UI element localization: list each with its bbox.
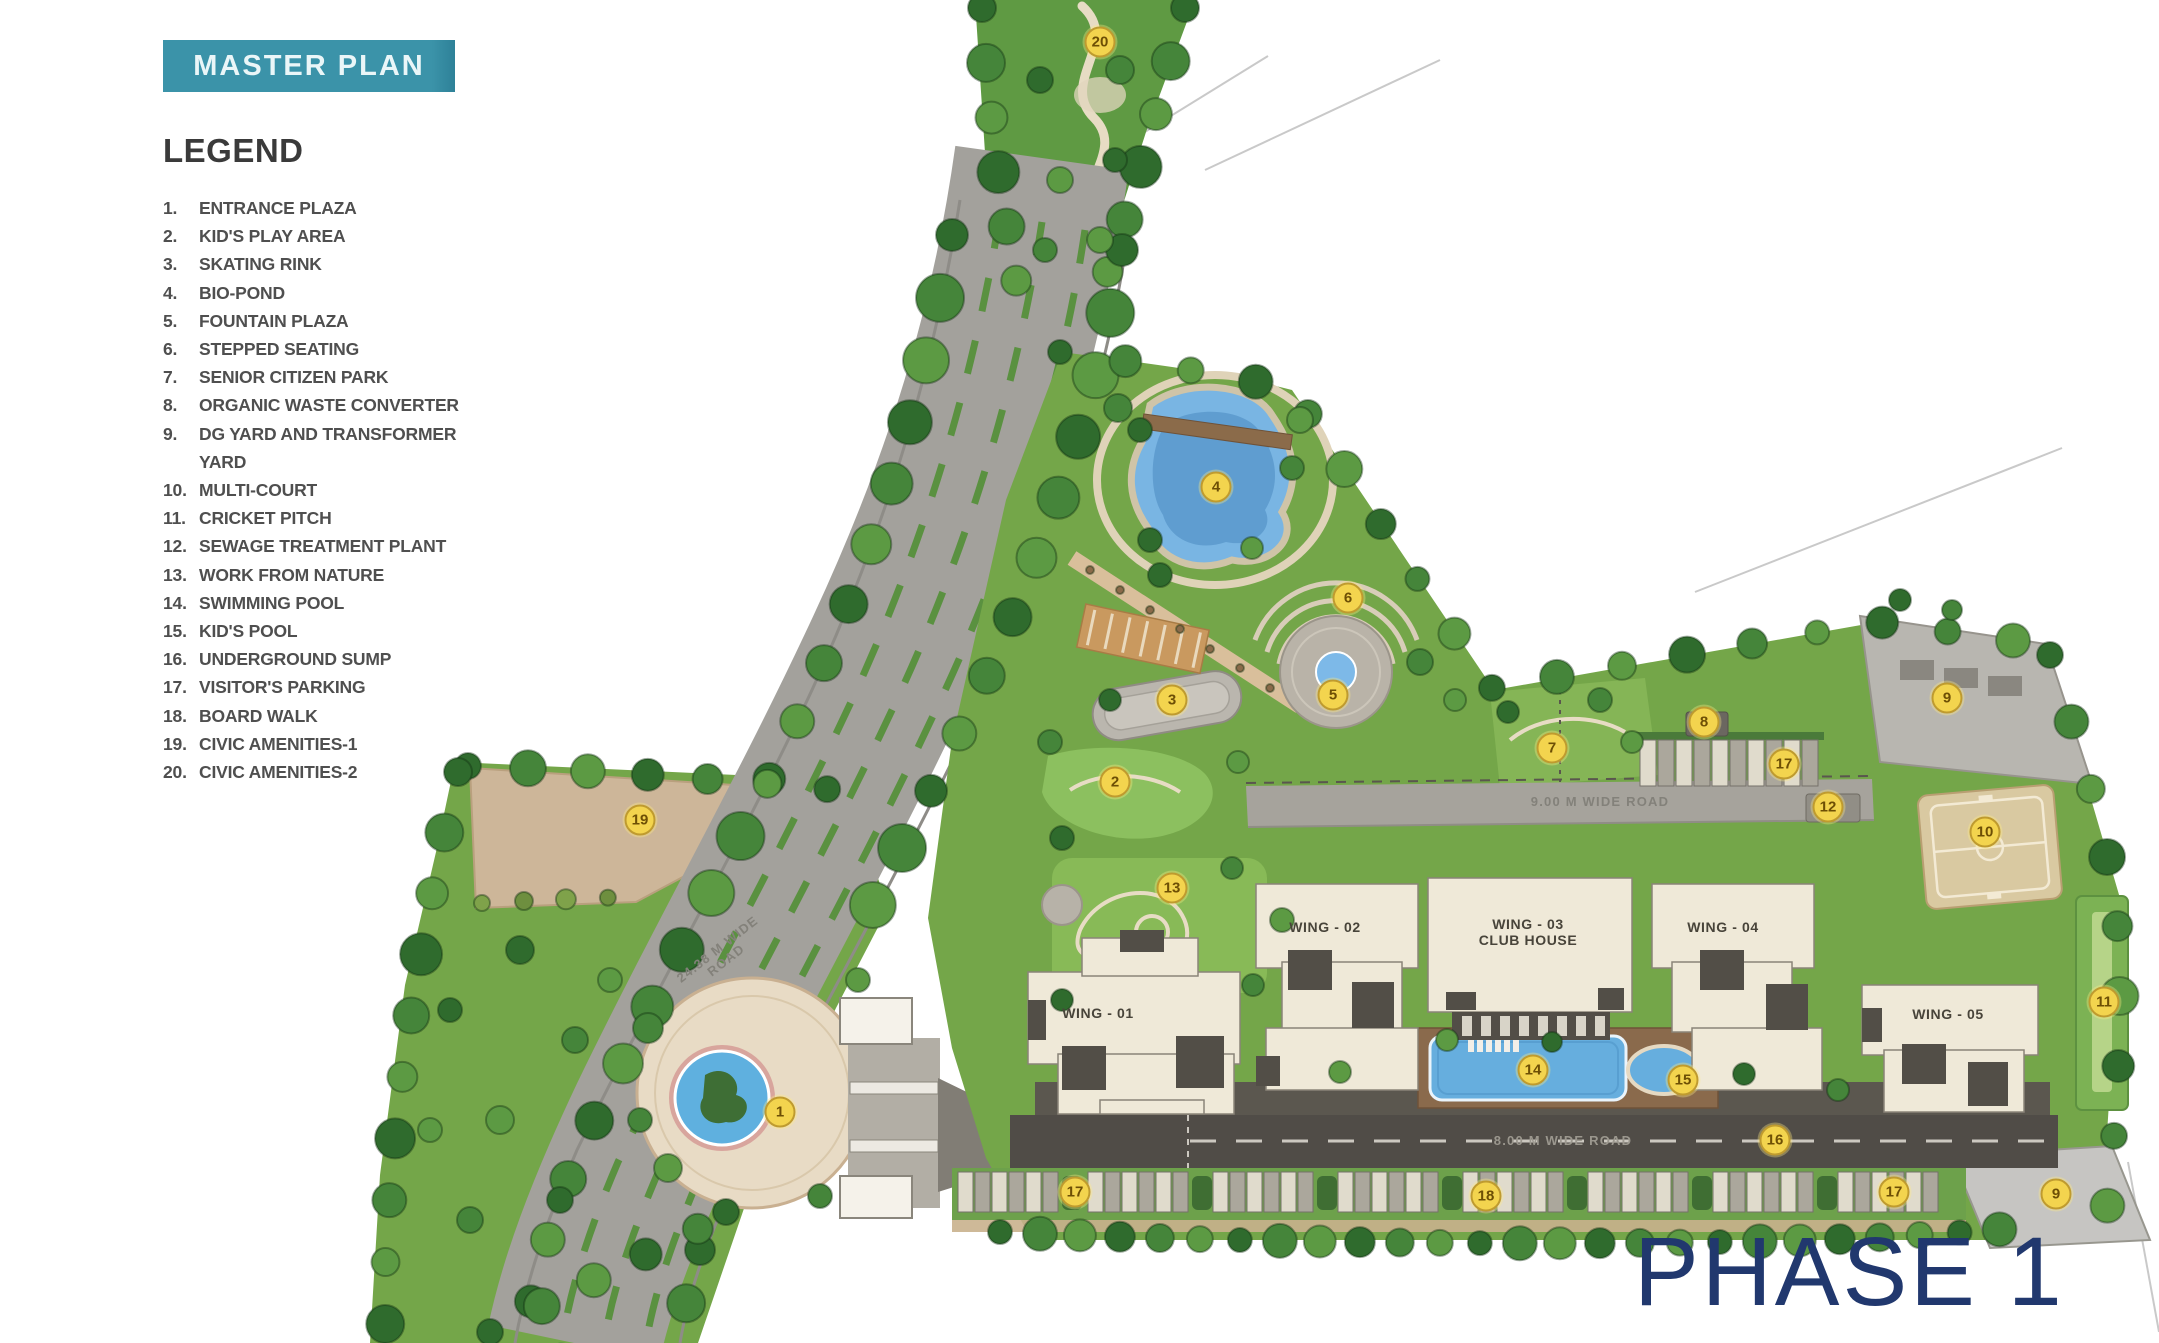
amenity-marker-number: 17	[1776, 756, 1793, 773]
wing-label: WING - 04	[1687, 919, 1759, 935]
legend-item-number: 5.	[163, 307, 199, 335]
legend-item: 9. DG YARD AND TRANSFORMER YARD	[163, 420, 503, 476]
amenity-marker-number: 10	[1977, 824, 1994, 841]
legend-item-number: 9.	[163, 420, 199, 476]
legend-item-label: KID'S PLAY AREA	[199, 222, 345, 250]
legend-item-number: 7.	[163, 363, 199, 391]
legend-item-label: CIVIC AMENITIES-2	[199, 758, 357, 786]
wing-label-line1: WING - 01	[1062, 1005, 1134, 1021]
legend-item-label: CIVIC AMENITIES-1	[199, 730, 357, 758]
legend-item-label: SWIMMING POOL	[199, 589, 344, 617]
amenity-marker: 4	[1201, 472, 1232, 503]
road-label-line1: 9.00 M WIDE ROAD	[1531, 795, 1669, 809]
wing-label: WING - 02	[1289, 919, 1361, 935]
amenity-marker: 1	[765, 1097, 796, 1128]
amenity-marker-number: 19	[632, 812, 649, 829]
legend-item-number: 20.	[163, 758, 199, 786]
legend-item-number: 12.	[163, 532, 199, 560]
legend-panel: LEGEND 1. ENTRANCE PLAZA 2. KID'S PLAY A…	[163, 132, 503, 786]
map-overlays: MASTER PLAN LEGEND 1. ENTRANCE PLAZA 2. …	[0, 0, 2159, 1343]
amenity-marker: 17	[1060, 1177, 1091, 1208]
amenity-marker: 11	[2089, 987, 2120, 1018]
amenity-marker: 7	[1537, 733, 1568, 764]
amenity-marker-number: 6	[1344, 590, 1352, 607]
amenity-marker-number: 9	[2052, 1186, 2060, 1203]
amenity-marker-number: 8	[1700, 714, 1708, 731]
amenity-marker: 3	[1157, 685, 1188, 716]
legend-item: 7. SENIOR CITIZEN PARK	[163, 363, 503, 391]
amenity-marker-number: 4	[1212, 479, 1220, 496]
legend-item-label: UNDERGROUND SUMP	[199, 645, 391, 673]
amenity-marker: 12	[1813, 792, 1844, 823]
legend-item: 13. WORK FROM NATURE	[163, 561, 503, 589]
amenity-marker: 16	[1760, 1125, 1791, 1156]
legend-item: 3. SKATING RINK	[163, 250, 503, 278]
wing-label-line1: WING - 03	[1479, 916, 1578, 932]
amenity-marker: 9	[2041, 1179, 2072, 1210]
legend-item: 18. BOARD WALK	[163, 702, 503, 730]
legend-item-number: 14.	[163, 589, 199, 617]
amenity-marker-number: 5	[1329, 687, 1337, 704]
amenity-marker-number: 13	[1164, 880, 1181, 897]
legend-item: 12. SEWAGE TREATMENT PLANT	[163, 532, 503, 560]
road-label: 8.00 M WIDE ROAD	[1494, 1134, 1632, 1148]
amenity-marker-number: 16	[1767, 1132, 1784, 1149]
legend-item-label: FOUNTAIN PLAZA	[199, 307, 349, 335]
legend-item: 20. CIVIC AMENITIES-2	[163, 758, 503, 786]
legend-item-number: 1.	[163, 194, 199, 222]
legend-item-label: SENIOR CITIZEN PARK	[199, 363, 388, 391]
amenity-marker-number: 14	[1525, 1062, 1542, 1079]
wing-label-line1: WING - 04	[1687, 919, 1759, 935]
amenity-marker: 2	[1100, 767, 1131, 798]
legend-item-label: DG YARD AND TRANSFORMER YARD	[199, 420, 503, 476]
legend-item-number: 8.	[163, 391, 199, 419]
legend-item-number: 18.	[163, 702, 199, 730]
legend-item-label: ENTRANCE PLAZA	[199, 194, 357, 222]
amenity-marker-number: 7	[1548, 740, 1556, 757]
legend-item: 5. FOUNTAIN PLAZA	[163, 307, 503, 335]
legend-item-number: 16.	[163, 645, 199, 673]
amenity-marker: 18	[1471, 1181, 1502, 1212]
legend-item-number: 4.	[163, 279, 199, 307]
amenity-marker: 20	[1085, 27, 1116, 58]
road-label: 24.38 M WIDE ROAD	[674, 914, 769, 997]
amenity-marker: 10	[1970, 817, 2001, 848]
amenity-marker: 6	[1333, 583, 1364, 614]
master-plan-page: MASTER PLAN LEGEND 1. ENTRANCE PLAZA 2. …	[0, 0, 2159, 1343]
legend-item-label: SEWAGE TREATMENT PLANT	[199, 532, 446, 560]
legend-item-number: 6.	[163, 335, 199, 363]
legend-item-label: ORGANIC WASTE CONVERTER	[199, 391, 459, 419]
amenity-marker-number: 3	[1168, 692, 1176, 709]
amenity-marker: 14	[1518, 1055, 1549, 1086]
legend-list: 1. ENTRANCE PLAZA 2. KID'S PLAY AREA 3. …	[163, 194, 503, 786]
amenity-marker: 8	[1689, 707, 1720, 738]
legend-item-label: MULTI-COURT	[199, 476, 317, 504]
amenity-marker-number: 18	[1478, 1188, 1495, 1205]
wing-label: WING - 03 CLUB HOUSE	[1479, 916, 1578, 948]
road-label-line1: 8.00 M WIDE ROAD	[1494, 1134, 1632, 1148]
legend-item: 19. CIVIC AMENITIES-1	[163, 730, 503, 758]
legend-item-number: 13.	[163, 561, 199, 589]
amenity-marker: 17	[1769, 749, 1800, 780]
legend-item: 11. CRICKET PITCH	[163, 504, 503, 532]
legend-item: 17. VISITOR'S PARKING	[163, 673, 503, 701]
legend-item: 16. UNDERGROUND SUMP	[163, 645, 503, 673]
legend-title: LEGEND	[163, 132, 503, 170]
amenity-marker-number: 9	[1943, 690, 1951, 707]
wing-label: WING - 01	[1062, 1005, 1134, 1021]
amenity-marker: 19	[625, 805, 656, 836]
legend-item: 15. KID'S POOL	[163, 617, 503, 645]
amenity-marker: 15	[1668, 1065, 1699, 1096]
legend-item-number: 11.	[163, 504, 199, 532]
legend-item-number: 2.	[163, 222, 199, 250]
legend-item-number: 19.	[163, 730, 199, 758]
wing-label-line1: WING - 05	[1912, 1006, 1984, 1022]
amenity-marker-number: 12	[1820, 799, 1837, 816]
legend-item-label: KID'S POOL	[199, 617, 297, 645]
legend-item-label: BIO-POND	[199, 279, 285, 307]
legend-item: 2. KID'S PLAY AREA	[163, 222, 503, 250]
amenity-marker-number: 11	[2096, 994, 2112, 1011]
road-label: 9.00 M WIDE ROAD	[1531, 795, 1669, 809]
legend-item: 6. STEPPED SEATING	[163, 335, 503, 363]
amenity-marker: 13	[1157, 873, 1188, 904]
legend-item-number: 15.	[163, 617, 199, 645]
wing-label-line2: CLUB HOUSE	[1479, 932, 1578, 948]
amenity-marker-number: 1	[776, 1104, 784, 1121]
legend-item: 8. ORGANIC WASTE CONVERTER	[163, 391, 503, 419]
legend-item-label: WORK FROM NATURE	[199, 561, 384, 589]
legend-item: 10. MULTI-COURT	[163, 476, 503, 504]
amenity-marker-number: 17	[1886, 1184, 1903, 1201]
master-plan-badge: MASTER PLAN	[163, 40, 455, 92]
amenity-marker-number: 15	[1675, 1072, 1692, 1089]
legend-item-number: 10.	[163, 476, 199, 504]
legend-item: 1. ENTRANCE PLAZA	[163, 194, 503, 222]
amenity-marker-number: 20	[1092, 34, 1109, 51]
amenity-marker: 17	[1879, 1177, 1910, 1208]
amenity-marker: 5	[1318, 680, 1349, 711]
legend-item: 14. SWIMMING POOL	[163, 589, 503, 617]
amenity-marker-number: 2	[1111, 774, 1119, 791]
wing-label: WING - 05	[1912, 1006, 1984, 1022]
legend-item-label: CRICKET PITCH	[199, 504, 332, 532]
legend-item-number: 3.	[163, 250, 199, 278]
phase-label: PHASE 1	[1634, 1216, 2065, 1328]
legend-item-label: BOARD WALK	[199, 702, 318, 730]
legend-item-label: SKATING RINK	[199, 250, 322, 278]
wing-label-line1: WING - 02	[1289, 919, 1361, 935]
amenity-marker: 9	[1932, 683, 1963, 714]
legend-item-label: STEPPED SEATING	[199, 335, 359, 363]
legend-item: 4. BIO-POND	[163, 279, 503, 307]
amenity-marker-number: 17	[1067, 1184, 1084, 1201]
legend-item-label: VISITOR'S PARKING	[199, 673, 365, 701]
legend-item-number: 17.	[163, 673, 199, 701]
